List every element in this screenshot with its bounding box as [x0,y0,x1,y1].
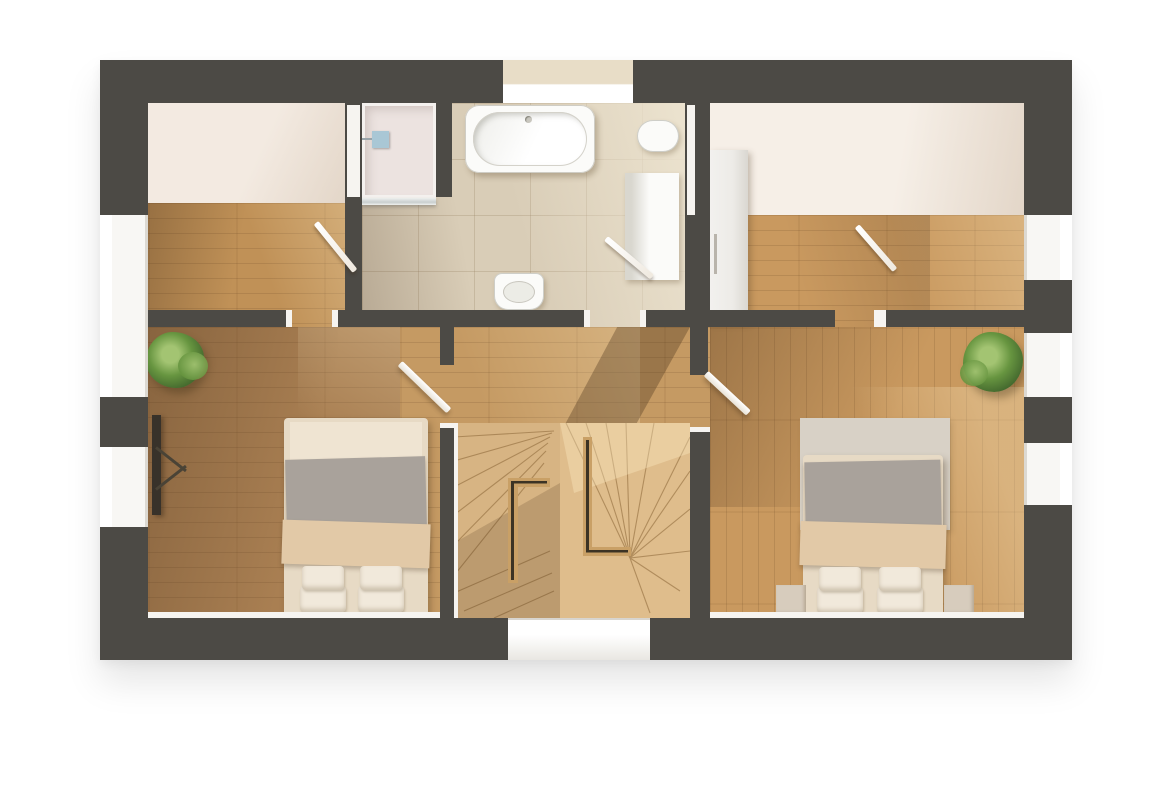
window-bottom-wall [508,618,650,660]
sloped-ceiling-area [148,103,345,203]
folded-blanket [799,521,946,569]
wall-stair-left-stub [440,327,454,365]
bathtub [465,105,595,173]
windows-left-wall [100,215,148,397]
wall-shower-tub-divider [436,103,452,197]
windows-right-wall [1024,333,1072,397]
pillow [302,566,344,590]
wall-right-pier [1024,397,1072,443]
pillow [360,566,402,590]
wall-partition-4 [880,310,1024,327]
double-bed-right [803,455,943,618]
wall-left-pier [100,397,148,447]
door-jamb [640,310,646,327]
wall-right-upper [1024,60,1072,215]
bidet-bowl [503,281,535,303]
sloped-ceiling-area [710,103,1024,215]
pillow [879,567,921,591]
windows-left-wall [100,447,148,527]
wall-partition-1 [148,310,292,327]
wall-partition-2 [332,310,590,327]
baseboard [148,612,440,618]
wall-top-left-segment [100,60,503,103]
window-top-wall [503,60,633,103]
washbasin [637,120,679,152]
door-jamb [880,310,886,327]
door-jamb [332,310,338,327]
wall-right-lower [1024,505,1072,660]
wall-bottom-left-segment [100,618,508,660]
floor-plan-render [0,0,1170,785]
room-top-right [710,103,1024,327]
room-top-left [148,103,345,327]
potted-plant-left-leaves [178,352,208,380]
wall-stair-left [440,423,454,618]
double-bed-left [284,418,428,618]
door-jamb [286,310,292,327]
bidet [494,273,544,310]
wall-bottom-right-segment [650,618,1072,660]
folded-blanket [281,520,430,569]
nightstand-left [776,585,806,615]
windows-right-wall [1024,443,1072,505]
wardrobe-handle [714,234,717,274]
wall-stair-right [690,427,710,618]
baseboard [710,612,1024,618]
bathtub-drain [525,116,532,123]
floor-plan [100,60,1072,660]
winder-staircase [454,423,690,618]
tv-panel [152,415,161,515]
duvet [285,456,427,530]
potted-plant-right-leaves [960,360,988,386]
duvet [804,460,941,529]
wall-top-right-segment [633,60,1072,103]
shower-head [372,131,389,148]
wardrobe [710,150,748,322]
wall-cap [440,423,454,428]
shower-enclosure [362,103,436,198]
nightstand-right [944,585,974,615]
basin-wall-cap [687,105,695,215]
pillow [819,567,861,591]
baseboard [454,423,458,618]
wall-stair-right-stub [690,327,708,375]
wall-left-lower [100,527,148,660]
door-jamb [584,310,590,327]
wall-left-upper [100,60,148,215]
wall-cap [690,427,710,432]
wall-partition-3 [640,310,835,327]
windows-right-wall [1024,215,1072,280]
wall-right-pier [1024,280,1072,333]
shower-glass-door [362,198,436,205]
shower-wall-cap [347,105,360,197]
